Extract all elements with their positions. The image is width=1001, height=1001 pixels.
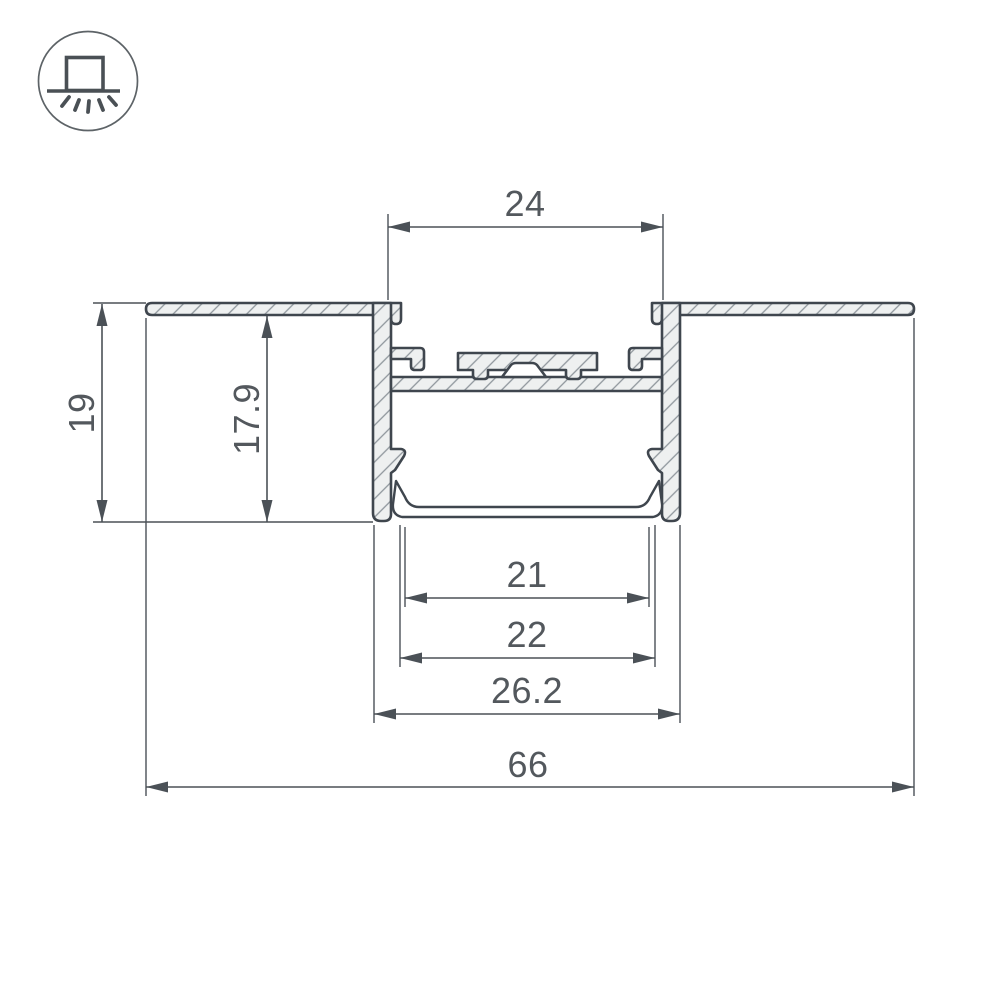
dimension-21: 21 (405, 527, 649, 607)
diffuser-cover (393, 481, 662, 517)
arrowhead-top (262, 316, 273, 338)
left-mounting-tab (391, 348, 424, 370)
recessed-downlight-icon (39, 32, 138, 131)
icon-fixture-box (67, 58, 104, 91)
arrowhead-bottom (97, 500, 108, 522)
dimension-19: 19 (61, 303, 373, 522)
middle-plate (391, 377, 662, 391)
arrowhead-bottom (262, 500, 273, 522)
dimension-value: 17.9 (226, 383, 267, 455)
arrowhead-right (627, 593, 649, 604)
arrowhead-left (400, 653, 422, 664)
arrowhead-top (97, 304, 108, 326)
right-mounting-tab (629, 348, 662, 370)
right-ceiling-flange (652, 303, 914, 324)
dimension-value: 22 (506, 614, 547, 655)
arrowhead-left (146, 782, 168, 793)
arrowhead-right (633, 653, 655, 664)
technical-drawing-page: 241917.9212226.266 (0, 0, 1001, 1001)
dimensions-layer: 241917.9212226.266 (61, 183, 914, 796)
arrowhead-left (388, 222, 410, 233)
dimension-value: 66 (507, 744, 548, 785)
arrowhead-right (892, 782, 914, 793)
arrowhead-right (658, 709, 680, 720)
dimension-24: 24 (388, 183, 663, 300)
dimension-17-9: 17.9 (226, 316, 273, 522)
arrowhead-left (405, 593, 427, 604)
dimension-value: 26.2 (491, 670, 563, 711)
arrowhead-left (374, 709, 396, 720)
dimension-22: 22 (400, 525, 655, 667)
dimension-value: 21 (506, 554, 547, 595)
right-side-wall (648, 303, 680, 521)
left-ceiling-flange (146, 303, 401, 324)
icon-light-rays (62, 97, 116, 112)
profile-drawing: 241917.9212226.266 (0, 0, 1001, 1001)
icon-circle (39, 32, 138, 131)
dimension-value: 19 (61, 392, 102, 433)
arrowhead-right (641, 222, 663, 233)
dimension-value: 24 (504, 183, 545, 224)
